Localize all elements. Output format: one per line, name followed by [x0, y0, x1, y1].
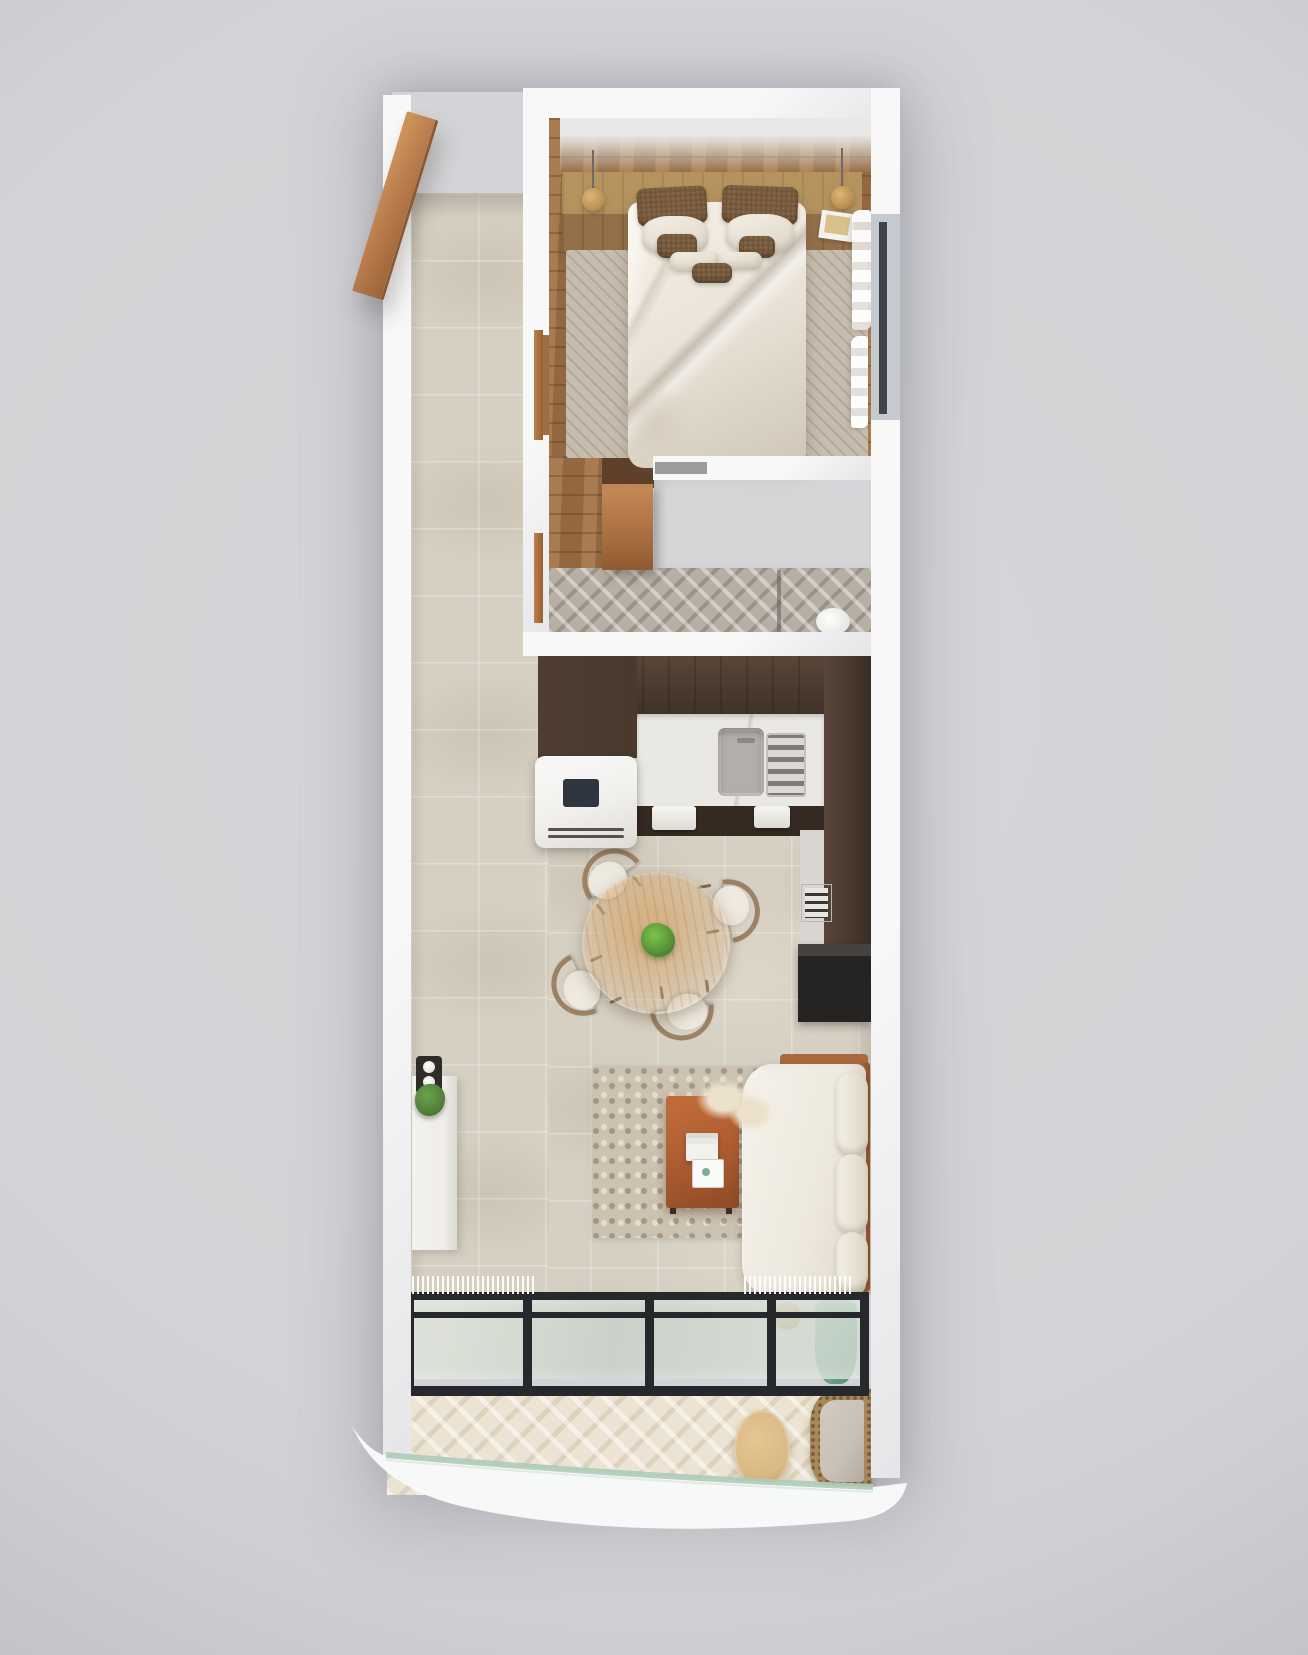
kitchen-faucet — [737, 738, 755, 743]
built-in-oven — [801, 884, 832, 922]
glass-frame-mid-rail — [405, 1312, 869, 1318]
glass-mullion — [767, 1292, 776, 1396]
toilet — [816, 608, 850, 635]
bathroom-door-edge — [534, 533, 543, 623]
pendant-lamp-right — [831, 186, 854, 209]
rattan-lounge-chair — [810, 1388, 872, 1492]
dish-rack — [766, 733, 806, 797]
fridge-display-panel — [563, 779, 599, 807]
window-curtain-lower — [851, 336, 868, 428]
east-exterior-wall — [871, 88, 900, 1478]
north-wall — [523, 88, 900, 118]
table-centerpiece-plant — [641, 923, 675, 957]
bedroom-doorway-floor — [543, 335, 549, 435]
window-curtain-upper — [852, 210, 871, 330]
fridge-handle-bottom — [548, 835, 624, 838]
pendant-cord-left — [592, 150, 594, 190]
bathroom-south-wall — [523, 632, 871, 656]
balcony-deck-floor — [387, 1393, 871, 1495]
kitchen-lower-cabinets — [608, 806, 824, 836]
doorway-threshold-vent — [655, 462, 707, 474]
pendant-cord-right — [841, 148, 843, 188]
rattan-chair-cushion — [820, 1400, 864, 1482]
hallway-partition-wall — [523, 100, 549, 652]
nightstand-book — [818, 210, 856, 242]
fridge — [535, 756, 637, 848]
bedroom-window-frame — [879, 222, 887, 414]
fringe-curtain-left — [412, 1276, 536, 1294]
glass-mullion — [645, 1292, 654, 1396]
tv-cabinet — [798, 944, 871, 1022]
bedroom-wall-shadow — [560, 118, 871, 174]
glass-frame-bottom-rail — [405, 1386, 869, 1396]
book-stack — [686, 1133, 718, 1161]
kitchen-towel-right — [754, 806, 790, 828]
glass-mullion — [523, 1292, 532, 1396]
fridge-handle-top — [548, 828, 624, 831]
west-exterior-wall — [383, 95, 411, 1458]
candle — [423, 1061, 435, 1073]
kitchen-towel-left — [652, 806, 696, 830]
pendant-lamp-left — [582, 188, 605, 211]
fringe-curtain-right — [744, 1276, 852, 1294]
apartment-floorplan-render — [0, 0, 1308, 1655]
kitchen-tall-cabinet — [538, 652, 637, 758]
sofa-back-cushion — [836, 1154, 868, 1234]
balcony-glass-sliding-wall — [405, 1292, 869, 1396]
decor-tray — [692, 1159, 724, 1188]
glass-mullion — [860, 1292, 869, 1396]
accent-cushion — [692, 263, 732, 283]
bathroom-open-door — [602, 484, 653, 570]
balcony-side-table — [734, 1410, 790, 1488]
bedroom-south-wall — [653, 456, 871, 480]
shower-glass-divider — [777, 570, 781, 632]
bedroom-door-edge — [534, 330, 543, 440]
sofa-back-cushion — [836, 1072, 868, 1156]
